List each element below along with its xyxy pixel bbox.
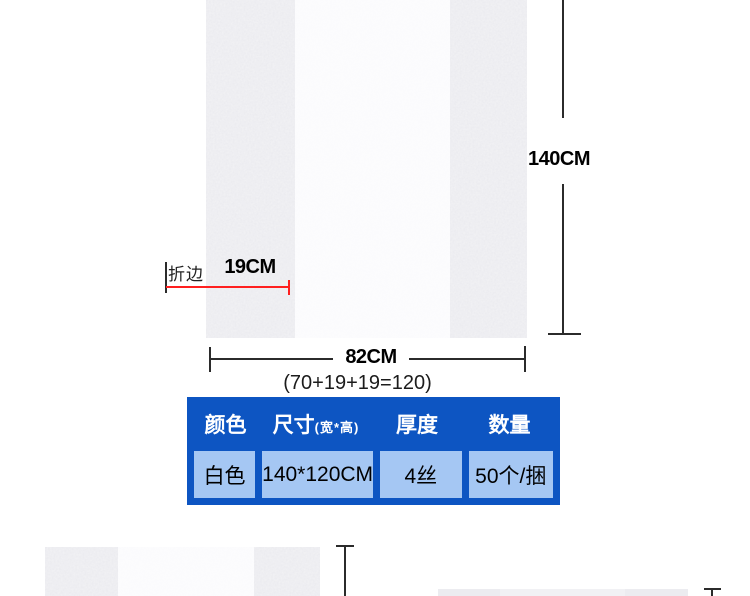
bag3-right-gusset	[625, 589, 688, 596]
bag3-left-gusset	[438, 589, 500, 596]
height-dim3-line	[711, 588, 713, 596]
spec-table-header-row: 颜色 尺寸(宽*高) 厚度 数量	[194, 397, 553, 451]
cell-thickness: 4丝	[380, 451, 462, 498]
spec-table-data-row: 白色 140*120CM 4丝 50个/捆	[194, 451, 553, 498]
header-color: 颜色	[194, 409, 257, 439]
bag3-center-panel	[500, 589, 625, 596]
fold-label: 折边	[168, 260, 204, 288]
width-dim-left-tick	[209, 347, 211, 372]
fold-dim-left-tick	[165, 262, 167, 293]
bag2-right-gusset	[254, 547, 320, 596]
height-dim-line-lower	[562, 184, 564, 334]
header-size: 尺寸(宽*高)	[264, 409, 368, 439]
cell-size: 140*120CM	[262, 451, 373, 498]
fold-width-label: 19CM	[215, 256, 285, 279]
header-thickness: 厚度	[375, 409, 459, 439]
fold-dim-red-line	[166, 286, 290, 288]
height-dim-line-upper	[562, 0, 564, 118]
bag2-center-panel	[118, 547, 254, 596]
fold-dim-red-tick	[288, 280, 290, 295]
height-dim2-line	[344, 545, 346, 596]
header-size-sub: (宽*高)	[315, 420, 360, 435]
product-image-tertiary	[438, 589, 688, 596]
bag-center-panel	[295, 0, 450, 338]
product-spec-page: 140CM 折边 19CM 82CM (70+19+19=120) 颜色 尺寸(…	[0, 0, 750, 596]
height-dim-end-tick	[548, 333, 581, 335]
cell-color: 白色	[194, 451, 255, 498]
width-dim-right-tick	[524, 346, 526, 372]
header-quantity: 数量	[466, 409, 553, 439]
header-size-main: 尺寸	[273, 414, 315, 437]
bag2-left-gusset	[45, 547, 118, 596]
width-dim-label: 82CM	[333, 346, 409, 369]
height-dim-label: 140CM	[516, 148, 602, 171]
spec-table: 颜色 尺寸(宽*高) 厚度 数量 白色 140*120CM 4丝 50个/捆	[187, 397, 560, 505]
cell-quantity: 50个/捆	[469, 451, 553, 498]
product-image-secondary	[45, 547, 320, 596]
width-formula-label: (70+19+19=120)	[270, 372, 445, 395]
